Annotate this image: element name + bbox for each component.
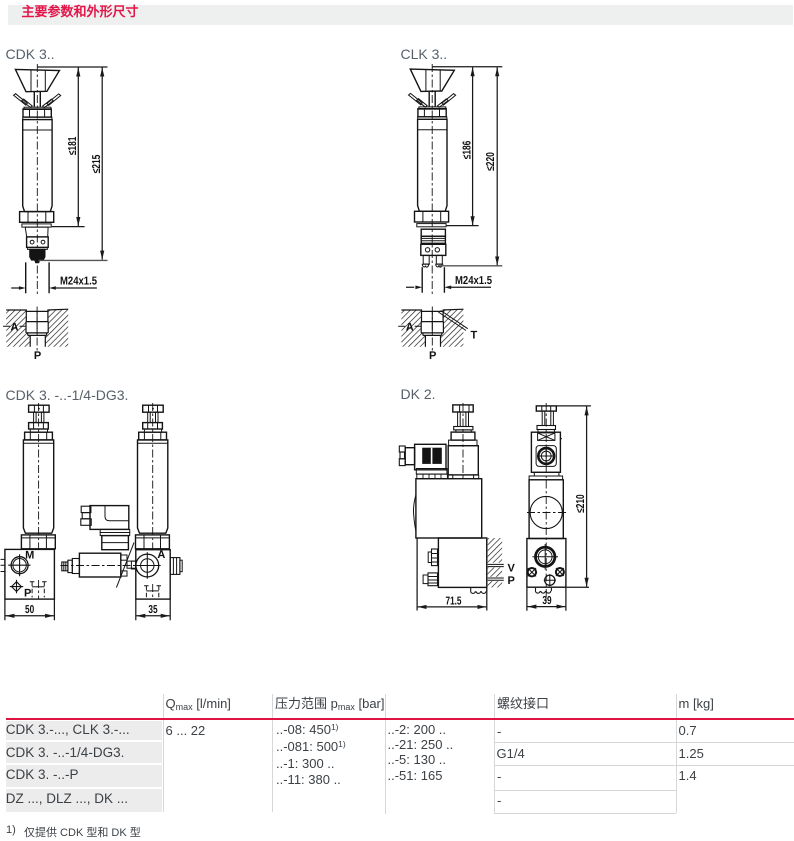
svg-text:35: 35 [148,604,158,616]
svg-text:≤181: ≤181 [67,136,79,155]
svg-text:≤220: ≤220 [485,152,497,171]
svg-text:≤215: ≤215 [91,154,103,173]
svg-text:P: P [24,588,31,600]
svg-text:M: M [25,550,34,562]
svg-text:P: P [508,575,515,587]
svg-text:50: 50 [25,604,34,616]
svg-text:71.5: 71.5 [446,595,462,607]
svg-text:≤186: ≤186 [462,141,474,160]
svg-text:≤210: ≤210 [575,494,587,512]
svg-text:T: T [471,330,478,342]
svg-text:M24x1.5: M24x1.5 [60,276,97,288]
svg-text:A: A [157,549,165,561]
svg-text:39: 39 [542,595,551,607]
svg-text:M24x1.5: M24x1.5 [455,275,492,287]
svg-text:V: V [508,563,516,575]
